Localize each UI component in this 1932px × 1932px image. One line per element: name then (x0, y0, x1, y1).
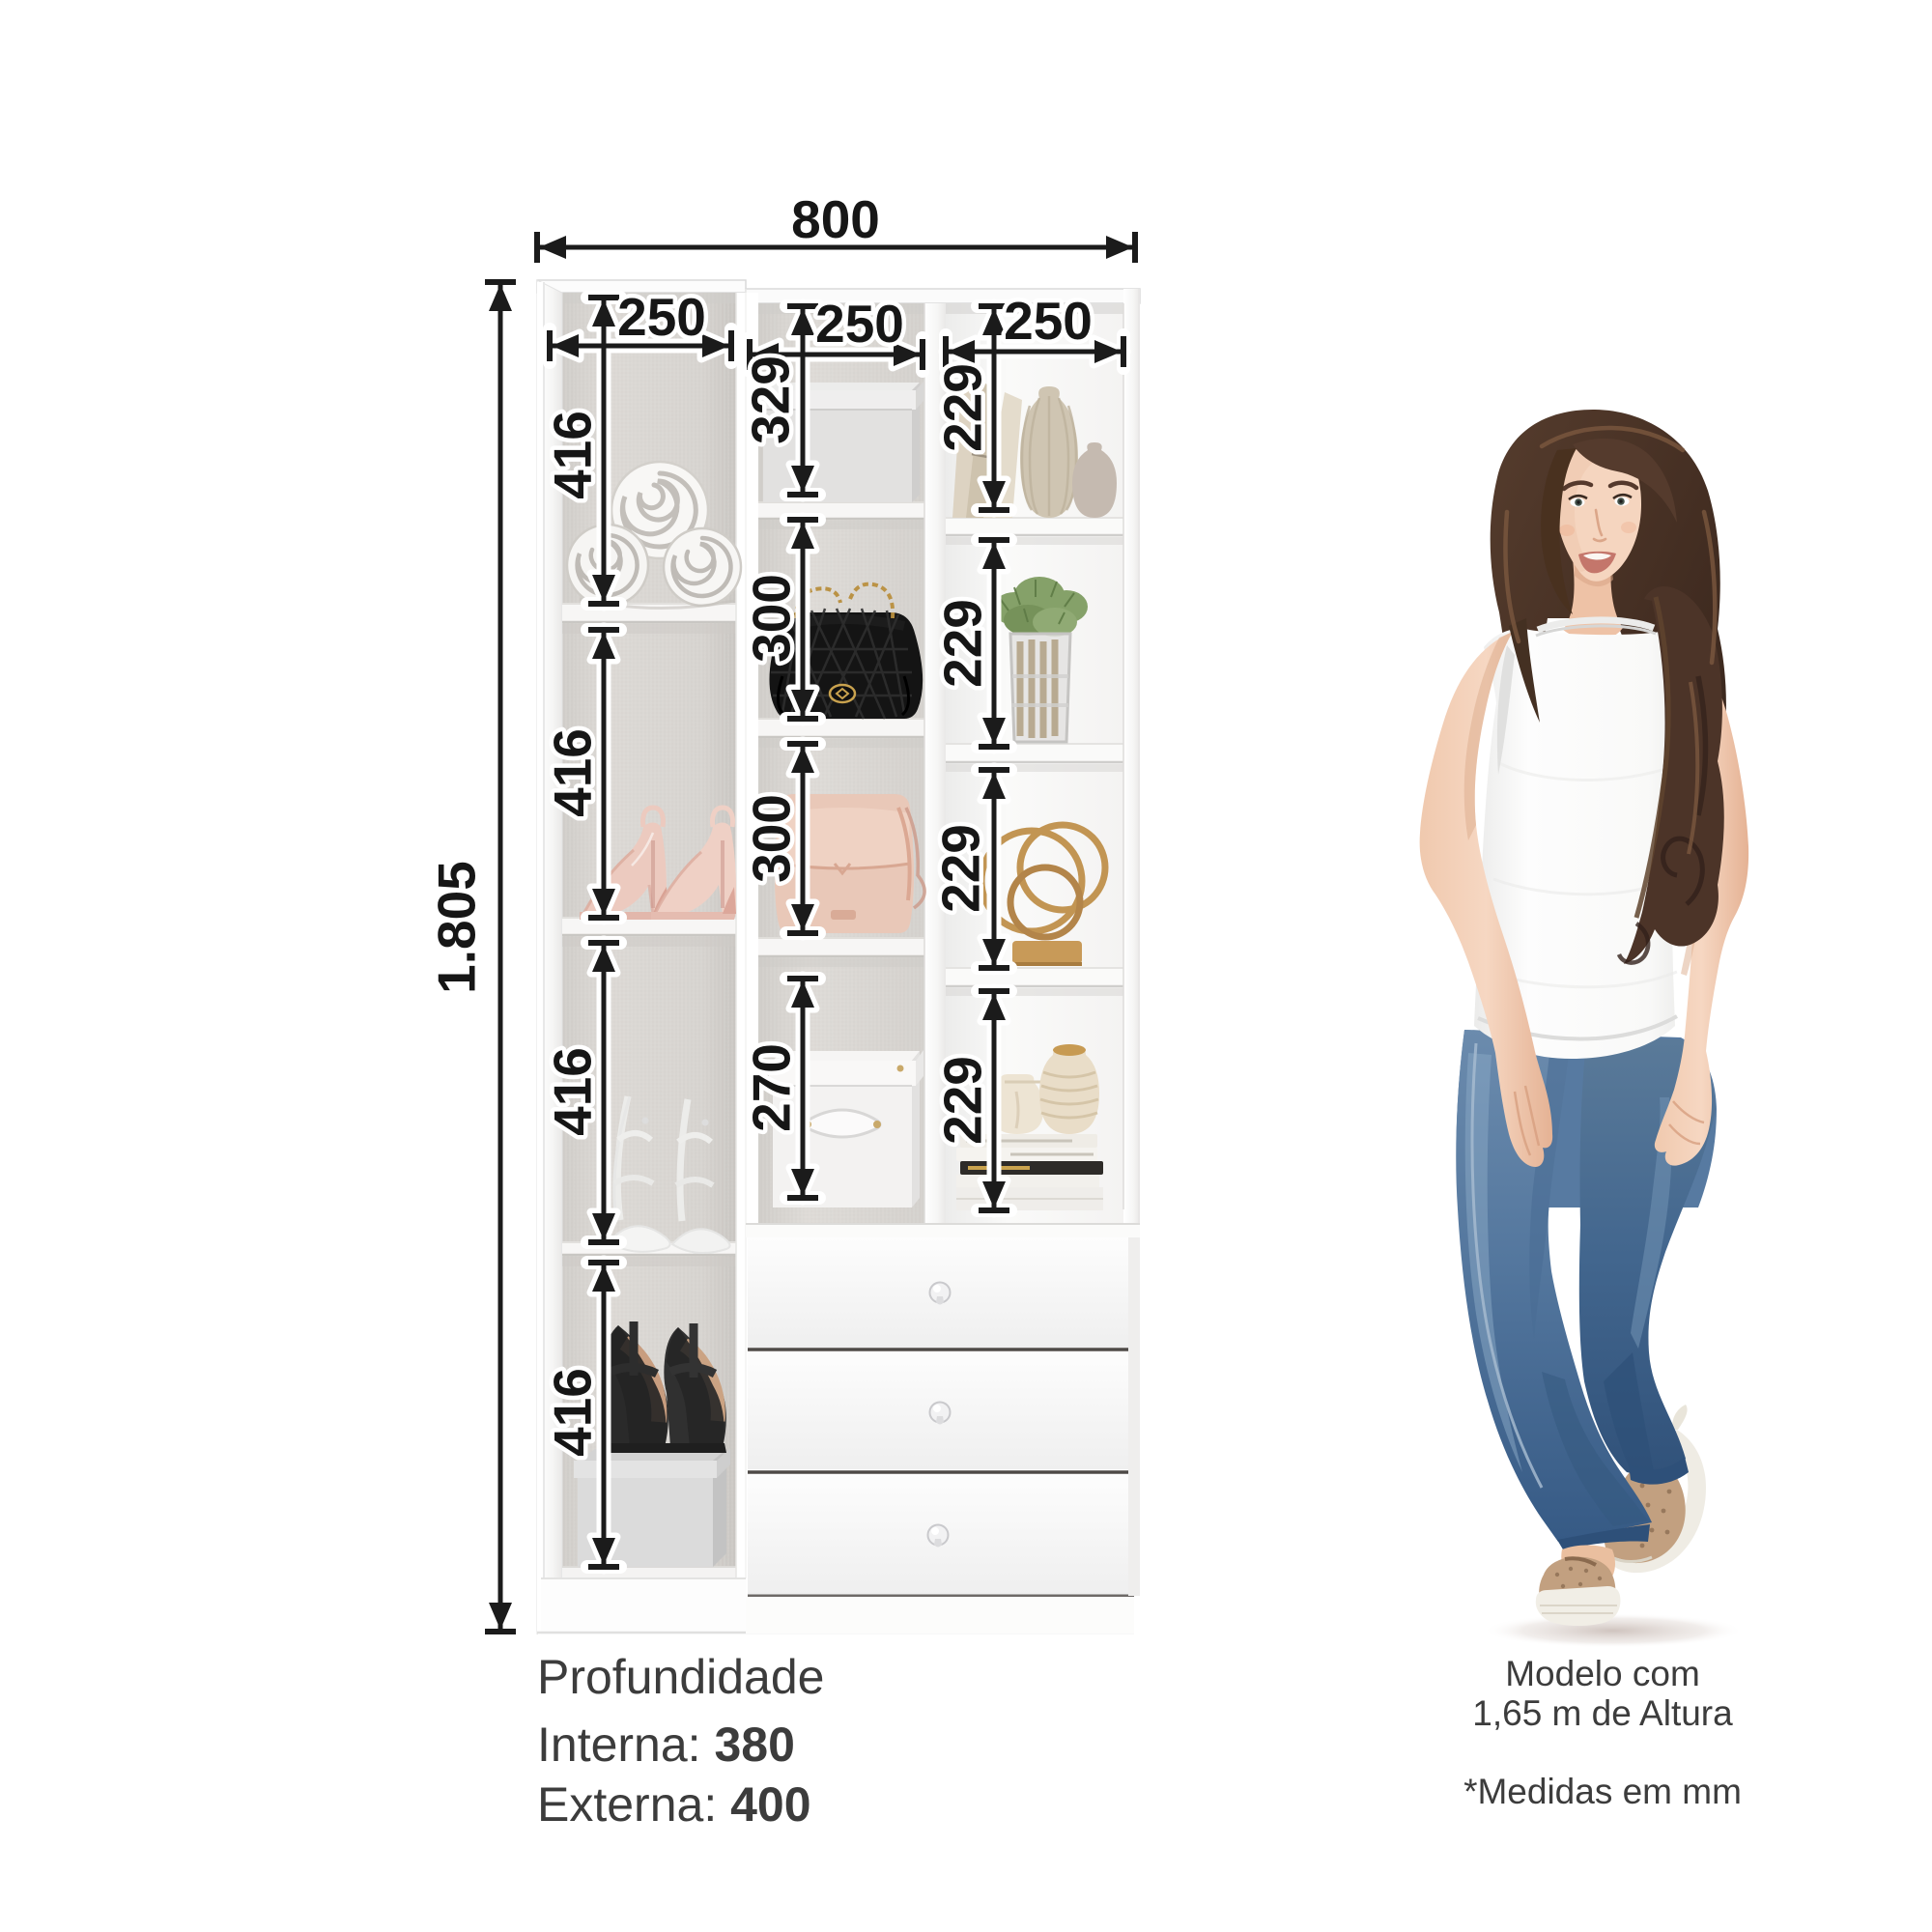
svg-text:250: 250 (1004, 291, 1093, 351)
svg-text:250: 250 (617, 287, 706, 347)
svg-text:300: 300 (741, 794, 801, 883)
svg-text:416: 416 (542, 728, 602, 817)
svg-text:1.805: 1.805 (426, 861, 486, 994)
svg-text:250: 250 (815, 294, 904, 354)
svg-text:416: 416 (542, 411, 602, 499)
svg-text:229: 229 (932, 599, 992, 688)
svg-text:329: 329 (740, 355, 800, 444)
svg-text:Modelo com: Modelo com (1505, 1654, 1700, 1693)
svg-text:270: 270 (741, 1043, 801, 1132)
svg-text:*Medidas em mm: *Medidas em mm (1463, 1772, 1742, 1811)
svg-text:300: 300 (741, 574, 801, 663)
svg-text:229: 229 (930, 824, 990, 913)
svg-text:416: 416 (542, 1047, 602, 1136)
svg-text:416: 416 (542, 1368, 602, 1457)
svg-text:229: 229 (932, 1056, 992, 1145)
svg-text:Interna: 380: Interna: 380 (537, 1718, 795, 1772)
svg-text:800: 800 (791, 189, 880, 249)
svg-text:Externa: 400: Externa: 400 (537, 1777, 811, 1832)
svg-text:Profundidade: Profundidade (537, 1650, 824, 1704)
svg-text:1,65 m de Altura: 1,65 m de Altura (1472, 1693, 1733, 1733)
svg-text:229: 229 (932, 363, 992, 452)
